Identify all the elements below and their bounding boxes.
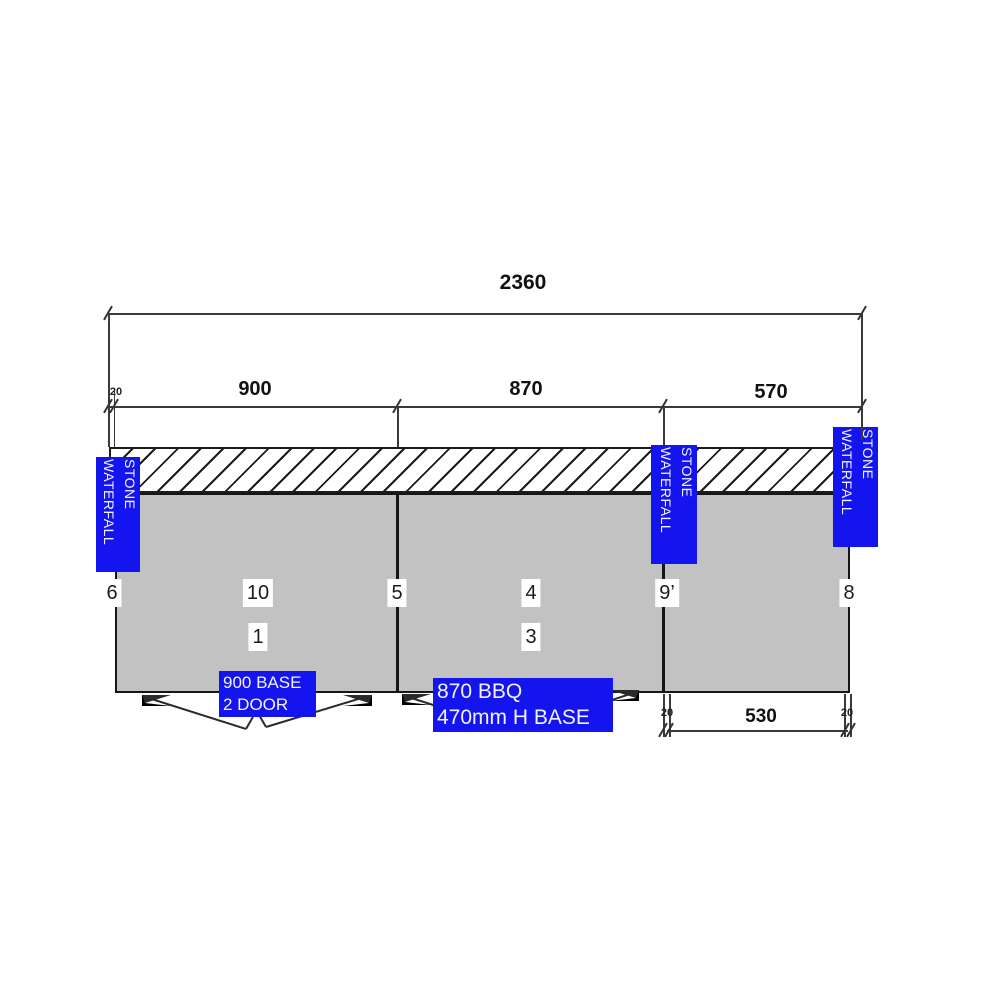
stone-waterfall-text: WATERFALL <box>655 447 676 564</box>
marker-8: 8 <box>839 579 858 607</box>
offset-20-label: 20 <box>661 707 673 719</box>
stone-waterfall-text: STONE <box>676 447 697 564</box>
label-line: 900 BASE <box>223 672 312 694</box>
stone-waterfall-text: WATERFALL <box>98 459 119 572</box>
label-line: 870 BBQ <box>437 679 609 705</box>
extension-line <box>861 313 863 440</box>
marker-5: 5 <box>387 579 406 607</box>
stone-waterfall-label-middle: STONE WATERFALL <box>651 445 697 564</box>
marker-10: 10 <box>243 579 273 607</box>
stone-waterfall-label-right: STONE WATERFALL <box>833 427 878 547</box>
marker-3: 3 <box>521 623 540 651</box>
label-870-bbq-base: 870 BBQ 470mm H BASE <box>433 678 613 732</box>
offset-20-label: 20 <box>110 386 122 398</box>
segment-dimension-line <box>108 406 862 408</box>
door-swing-arrow <box>245 716 254 729</box>
stone-waterfall-label-left: STONE WATERFALL <box>96 457 140 572</box>
overall-dimension-line <box>108 313 862 315</box>
segment-900-label: 900 <box>238 378 271 401</box>
elevation-drawing: 2360 20 900 870 570 STONE WATERFALL STON… <box>0 0 1000 1000</box>
door-hinge-wedge <box>402 694 431 705</box>
bottom-dimension-line <box>667 730 848 732</box>
marker-9: 9’ <box>655 579 679 607</box>
stone-waterfall-text: STONE <box>857 429 878 547</box>
overall-dimension-label: 2360 <box>500 271 547 295</box>
door-hinge-wedge <box>343 695 372 706</box>
door-hinge-wedge <box>610 690 639 701</box>
offset-20-label: 20 <box>841 707 853 719</box>
segment-870-label: 870 <box>509 378 542 401</box>
marker-6: 6 <box>102 579 121 607</box>
stone-waterfall-text: WATERFALL <box>836 429 857 547</box>
extension-line <box>397 406 399 447</box>
marker-4: 4 <box>521 579 540 607</box>
door-hinge-wedge <box>142 695 171 706</box>
marker-1: 1 <box>248 623 267 651</box>
stone-countertop-hatch <box>109 447 861 493</box>
extension-line <box>663 406 665 447</box>
label-line: 470mm H BASE <box>437 705 609 731</box>
cabinet-body <box>115 493 850 693</box>
extension-line <box>108 313 110 447</box>
stone-waterfall-text: STONE <box>119 459 140 572</box>
bottom-530-label: 530 <box>745 706 777 728</box>
segment-570-label: 570 <box>754 381 787 404</box>
label-900-base-2-door: 900 BASE 2 DOOR <box>219 671 316 717</box>
label-line: 2 DOOR <box>223 694 312 716</box>
